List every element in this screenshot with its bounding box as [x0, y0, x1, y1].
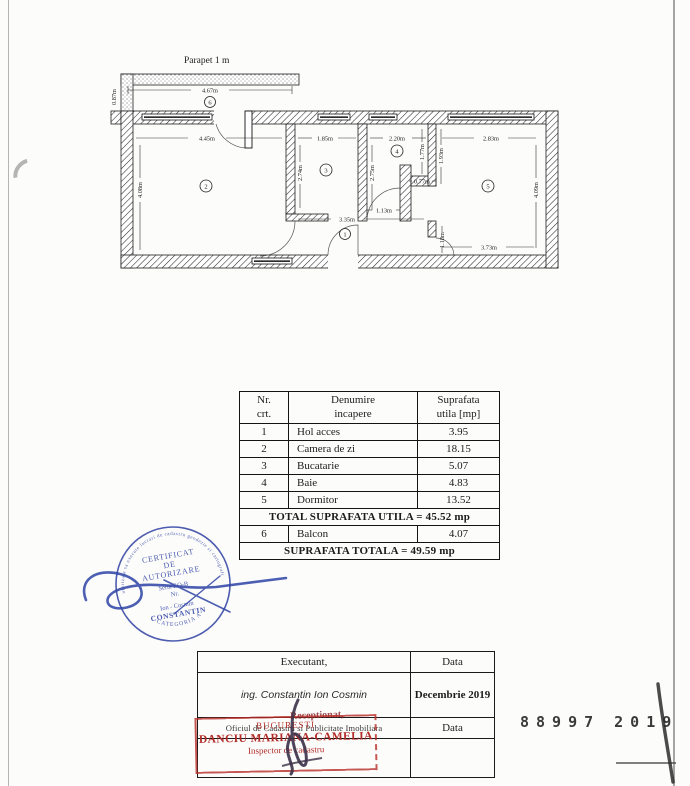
- data-value-december: Decembrie 2019: [411, 673, 495, 718]
- entrance-door-arc: [328, 225, 358, 255]
- dim-room5-bottom: 3.73m: [481, 245, 497, 252]
- table-row: 3 Bucatarie 5.07: [240, 458, 500, 475]
- dim-hall-width: 3.35m: [339, 217, 355, 224]
- dim-room5-width: 2.83m: [483, 136, 499, 143]
- dim-hall-height: 1.18m: [439, 232, 446, 248]
- room-6-number: 6: [208, 100, 212, 107]
- data-label-1: Data: [411, 652, 495, 673]
- dim-room3-height: 2.74m: [297, 165, 304, 181]
- dim-notch-width: 0.77m: [414, 179, 430, 186]
- wall-room2-room3: [286, 124, 295, 214]
- floor-plan: Parapet 1 m: [106, 50, 576, 295]
- executant-label: Executant,: [198, 652, 411, 673]
- authorization-stamp: autorizata sa execute lucrari de cadastr…: [78, 518, 298, 660]
- room-2-number: 2: [204, 184, 207, 191]
- dim-room2-width: 4.45m: [199, 136, 215, 143]
- area-table-header: Nr.crt. Denumireincapere Suprafatautila …: [240, 392, 500, 424]
- registration-number-part1: 88997: [520, 713, 600, 731]
- data-label-2: Data: [411, 718, 495, 739]
- wall-bath-left: [400, 165, 411, 221]
- registration-number: 88997 2019: [520, 713, 678, 731]
- balcony-parapet-top: [121, 74, 299, 85]
- empty-date-cell: [411, 739, 495, 778]
- stamp-line-nr: Nr.: [170, 590, 179, 598]
- room-1-number: 1: [343, 232, 346, 239]
- wall-right: [546, 111, 558, 268]
- page-curl-line: [636, 678, 690, 786]
- wall-room3-sill: [286, 214, 328, 221]
- wall-room4-room5: [428, 124, 436, 186]
- room-5-number: 5: [486, 184, 489, 191]
- dim-room4-height: 2.75m: [369, 165, 376, 181]
- dim-balcony-width: 4.67m: [202, 88, 218, 95]
- scan-right-edge: [673, 0, 675, 786]
- dim-room2-height: 4.08m: [137, 182, 144, 198]
- room-3-number: 3: [324, 168, 327, 175]
- balcony-parapet-left: [121, 74, 133, 115]
- wall-left: [121, 111, 133, 268]
- inspector-signature: [262, 696, 332, 780]
- scan-crescent-mark: [7, 153, 48, 195]
- wall-hall-room5: [428, 221, 436, 237]
- dim-room5-height: 4.09m: [533, 182, 540, 198]
- hall-room2-door-arc: [260, 221, 295, 256]
- table-row: 2 Camera de zi 18.15: [240, 441, 500, 458]
- registration-number-part2: 2019: [614, 713, 678, 731]
- room-4-number: 4: [395, 149, 399, 156]
- dim-room5-left: 1.93m: [438, 148, 445, 164]
- balcony-door-stub: [245, 111, 252, 148]
- table-row: 5 Dormitor 13.52: [240, 492, 500, 509]
- scan-left-edge: [8, 0, 9, 786]
- dim-room4-right: 1.77m: [419, 144, 426, 160]
- balcony-door-opening: [214, 110, 246, 125]
- table-row: 1 Hol acces 3.95: [240, 424, 500, 441]
- dim-door-width: 1.13m: [376, 208, 392, 215]
- dim-room4-width: 2.20m: [389, 136, 405, 143]
- dim-balcony-depth: 0.87m: [111, 89, 118, 105]
- entrance-opening: [328, 254, 358, 269]
- wall-room3-room4: [358, 124, 367, 221]
- scanned-cadastral-document: Parapet 1 m: [0, 0, 690, 786]
- table-row: 4 Baie 4.83: [240, 475, 500, 492]
- balcony-door-arc: [216, 124, 245, 148]
- dim-room3-width: 1.85m: [317, 136, 333, 143]
- floor-plan-title: Parapet 1 m: [184, 56, 230, 66]
